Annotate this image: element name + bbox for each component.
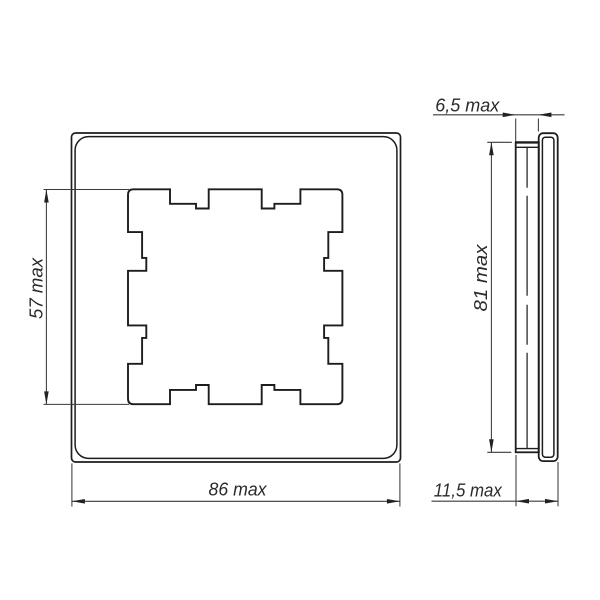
svg-text:11,5 max: 11,5 max [434, 479, 503, 500]
svg-text:81 max: 81 max [470, 244, 491, 312]
svg-text:86 max: 86 max [209, 479, 268, 500]
svg-text:57 max: 57 max [26, 257, 47, 319]
svg-text:6,5 max: 6,5 max [435, 94, 500, 115]
